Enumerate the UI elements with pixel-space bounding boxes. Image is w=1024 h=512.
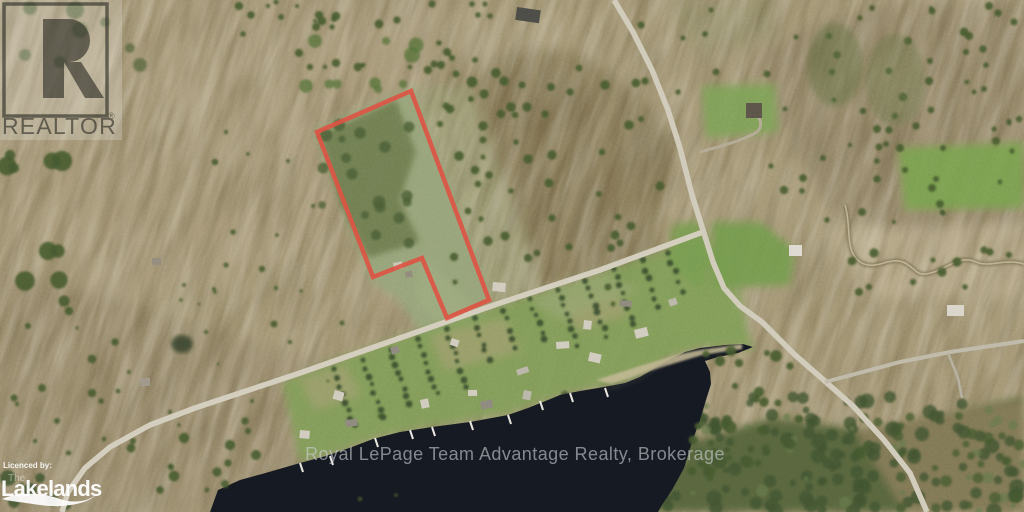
svg-text:Royal LePage Team Advantage Re: Royal LePage Team Advantage Realty, Brok… bbox=[305, 444, 725, 464]
svg-text:REALTOR: REALTOR bbox=[2, 113, 117, 139]
svg-text:®: ® bbox=[108, 111, 115, 121]
svg-text:Licenced by:: Licenced by: bbox=[3, 461, 52, 470]
